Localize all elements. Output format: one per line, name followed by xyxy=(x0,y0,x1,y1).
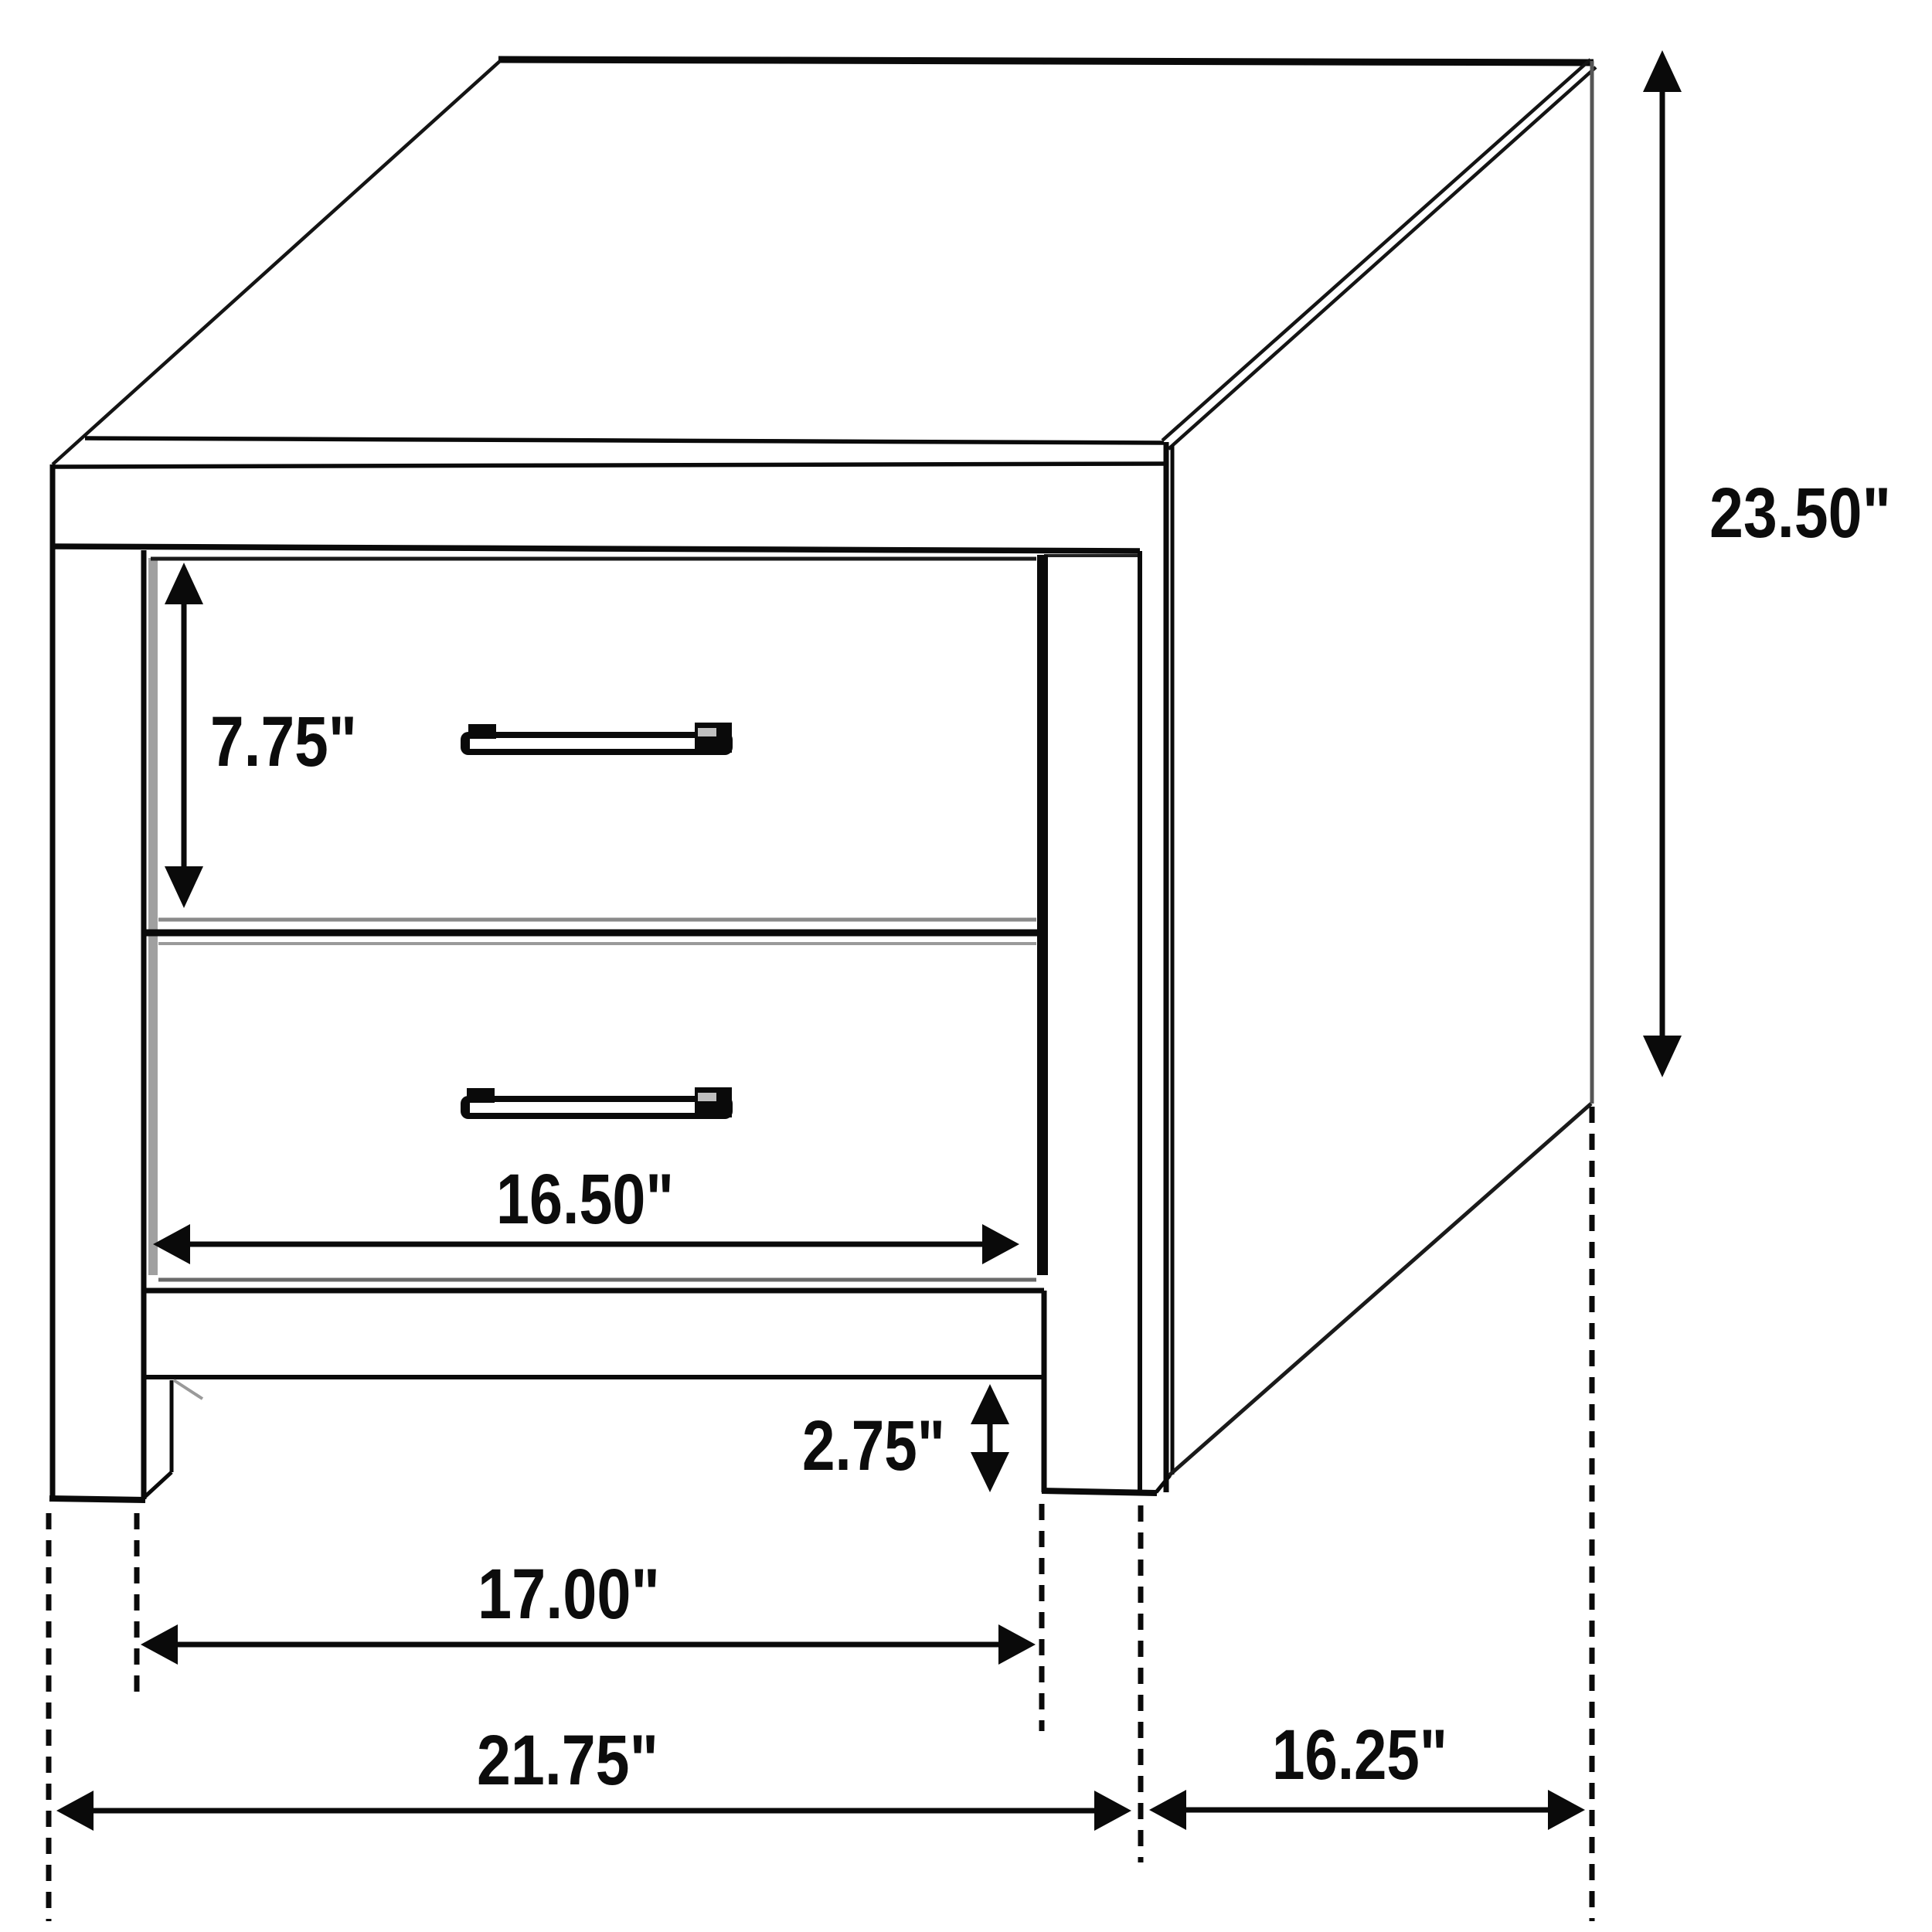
svg-text:7.75": 7.75" xyxy=(210,702,357,781)
svg-text:16.50": 16.50" xyxy=(496,1160,674,1239)
svg-text:16.25": 16.25" xyxy=(1272,1716,1447,1794)
svg-text:2.75": 2.75" xyxy=(802,1406,945,1485)
svg-text:21.75": 21.75" xyxy=(477,1721,658,1800)
svg-text:17.00": 17.00" xyxy=(478,1555,660,1634)
svg-text:23.50": 23.50" xyxy=(1709,474,1891,553)
